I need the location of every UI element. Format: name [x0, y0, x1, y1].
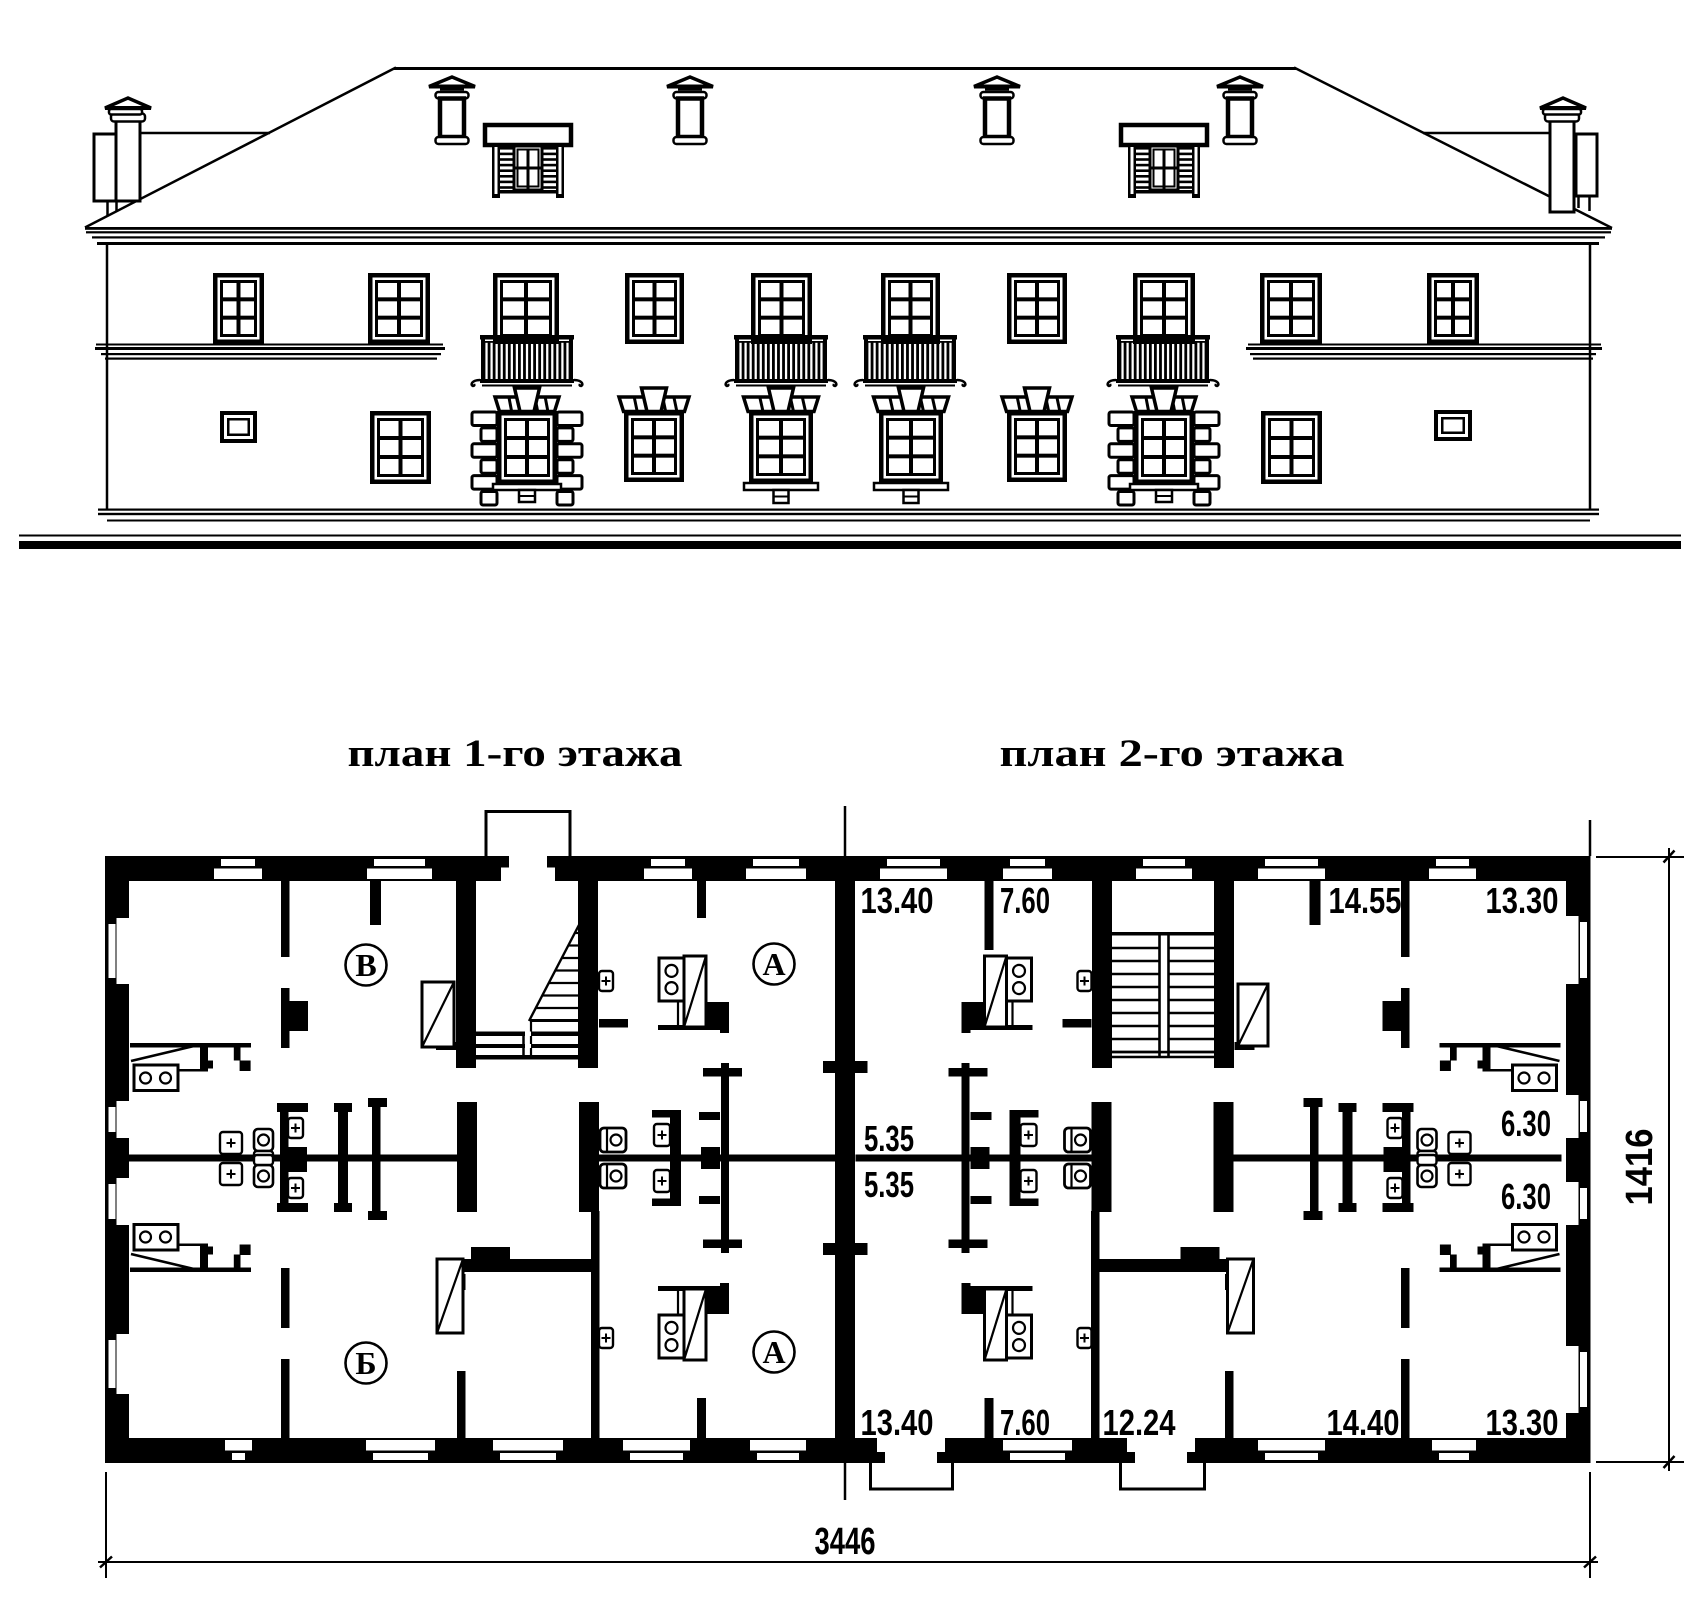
svg-text:13.40: 13.40	[861, 880, 934, 921]
svg-text:6.30: 6.30	[1501, 1176, 1551, 1217]
svg-text:13.30: 13.30	[1486, 1402, 1559, 1443]
svg-text:7.60: 7.60	[1000, 1402, 1050, 1443]
svg-text:план 2-го этажа: план 2-го этажа	[1000, 732, 1345, 775]
svg-text:А: А	[762, 946, 785, 982]
svg-text:А: А	[762, 1334, 785, 1370]
svg-text:В: В	[355, 947, 376, 983]
svg-text:7.60: 7.60	[1000, 880, 1050, 921]
svg-text:13.40: 13.40	[861, 1402, 934, 1443]
svg-text:1416: 1416	[1619, 1129, 1661, 1206]
svg-text:Б: Б	[355, 1345, 376, 1381]
svg-text:5.35: 5.35	[864, 1164, 914, 1205]
svg-text:6.30: 6.30	[1501, 1103, 1551, 1144]
svg-text:5.35: 5.35	[864, 1118, 914, 1159]
svg-text:3446: 3446	[815, 1521, 876, 1563]
svg-text:12.24: 12.24	[1103, 1402, 1176, 1443]
svg-text:план 1-го этажа: план 1-го этажа	[348, 732, 683, 775]
svg-text:13.30: 13.30	[1486, 880, 1559, 921]
svg-text:14.40: 14.40	[1327, 1402, 1400, 1443]
svg-text:14.55: 14.55	[1329, 880, 1402, 921]
